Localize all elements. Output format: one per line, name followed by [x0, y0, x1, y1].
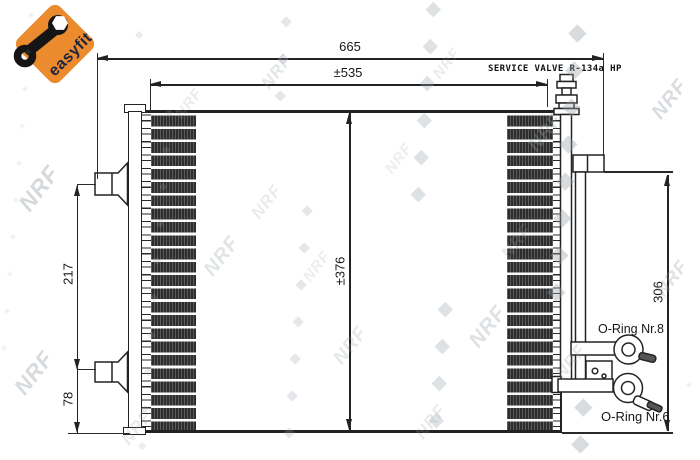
- wrench-icon: [0, 0, 110, 110]
- oring8-pipe: [571, 342, 616, 355]
- oring6-pipe: [558, 379, 613, 392]
- arrow-down-icon: [74, 422, 80, 433]
- arrow-up-icon: [346, 113, 352, 124]
- valve-span-label: ±535: [334, 65, 363, 80]
- overall-width-label: 665: [339, 39, 361, 54]
- dim-line-overall-width: [97, 58, 603, 59]
- bracket-upper-span-label: 217: [61, 263, 76, 285]
- extension-line: [562, 432, 673, 433]
- dim-line-right-side: [667, 175, 668, 431]
- extension-line: [77, 184, 96, 185]
- oring8-bolt: [638, 352, 656, 363]
- core-height-label: ±376: [333, 257, 348, 286]
- service-valve-hex: [556, 95, 577, 103]
- extension-line: [77, 369, 96, 370]
- arrow-up-icon: [74, 185, 80, 196]
- extension-line: [604, 171, 673, 172]
- arrow-right-icon: [536, 81, 547, 87]
- bracket-lower-span-label: 78: [61, 392, 76, 406]
- right-side-height-label: 306: [651, 281, 666, 303]
- dim-line-valve-span: [150, 84, 547, 85]
- easyfit-badge: easyfit: [0, 0, 110, 110]
- arrow-down-icon: [74, 359, 80, 370]
- arrow-down-icon: [346, 419, 352, 430]
- dim-line-core-height: [349, 113, 350, 430]
- oring-top-label: O-Ring Nr.8: [598, 322, 664, 336]
- hp-pipe: [561, 115, 572, 385]
- arrow-left-icon: [150, 81, 161, 87]
- dim-line-left-side: [77, 185, 78, 433]
- service-valve-label: SERVICE VALVE R-134a HP: [488, 64, 622, 74]
- arrow-right-icon: [592, 55, 603, 61]
- extension-line: [68, 433, 130, 434]
- arrow-up-icon: [664, 175, 670, 186]
- oring-bottom-label: O-Ring Nr.6: [601, 409, 670, 424]
- service-valve-base: [554, 109, 579, 115]
- service-valve-cap: [560, 75, 573, 82]
- technical-drawing-condenser: easyfit 665 ±535 SERVICE VALVE R-134a HP: [0, 0, 700, 460]
- inlet-block: [573, 155, 604, 172]
